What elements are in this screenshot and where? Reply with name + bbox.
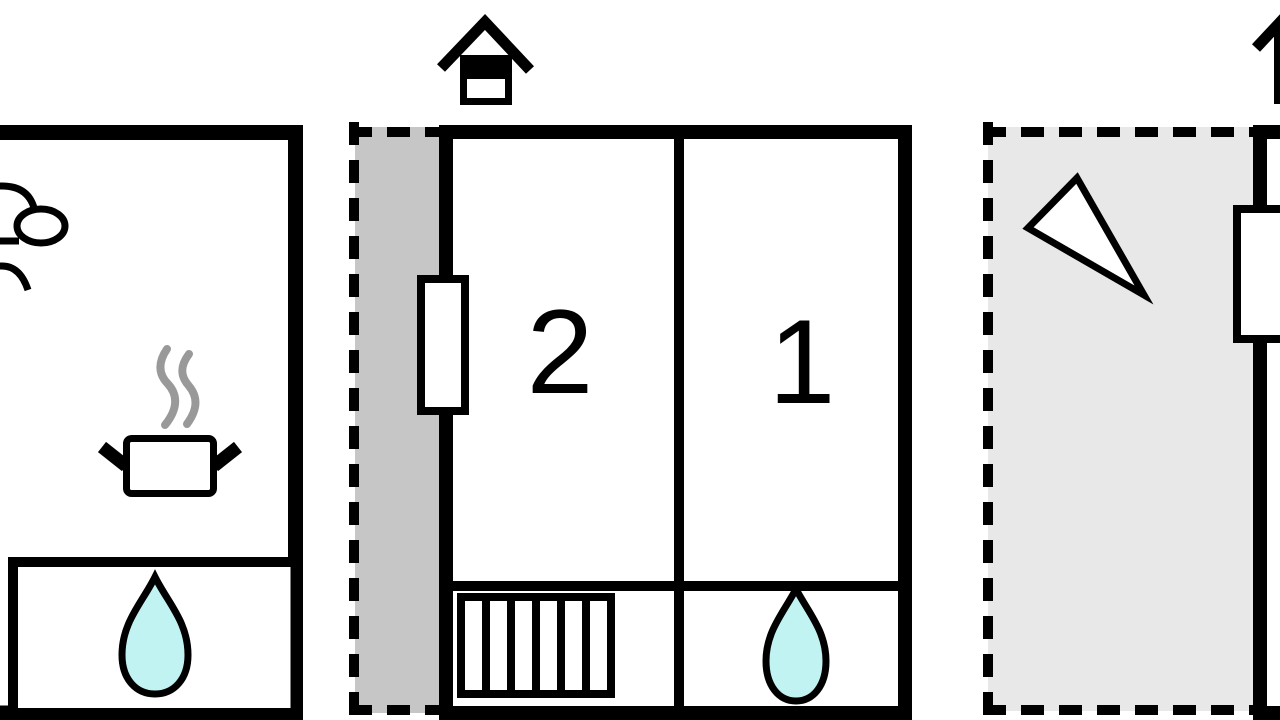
window-icon bbox=[421, 279, 465, 411]
floor-plan: 2 1 bbox=[0, 0, 1280, 720]
pot-body bbox=[127, 439, 214, 494]
left-building bbox=[0, 133, 296, 714]
toilet-bowl bbox=[17, 209, 65, 243]
floor-plan-svg: 2 1 bbox=[0, 0, 1280, 720]
room-1-label: 1 bbox=[769, 295, 836, 429]
window-icon bbox=[1237, 209, 1280, 339]
main-building: 2 1 bbox=[421, 132, 905, 713]
covered-terrace-fill bbox=[355, 127, 440, 713]
room-2-label: 2 bbox=[527, 285, 594, 419]
chimney-box-black-band bbox=[460, 55, 512, 79]
open-terrace bbox=[983, 122, 1256, 716]
covered-terrace-strip bbox=[349, 122, 444, 718]
open-terrace-fill bbox=[988, 127, 1256, 711]
stairs-icon bbox=[461, 597, 611, 694]
